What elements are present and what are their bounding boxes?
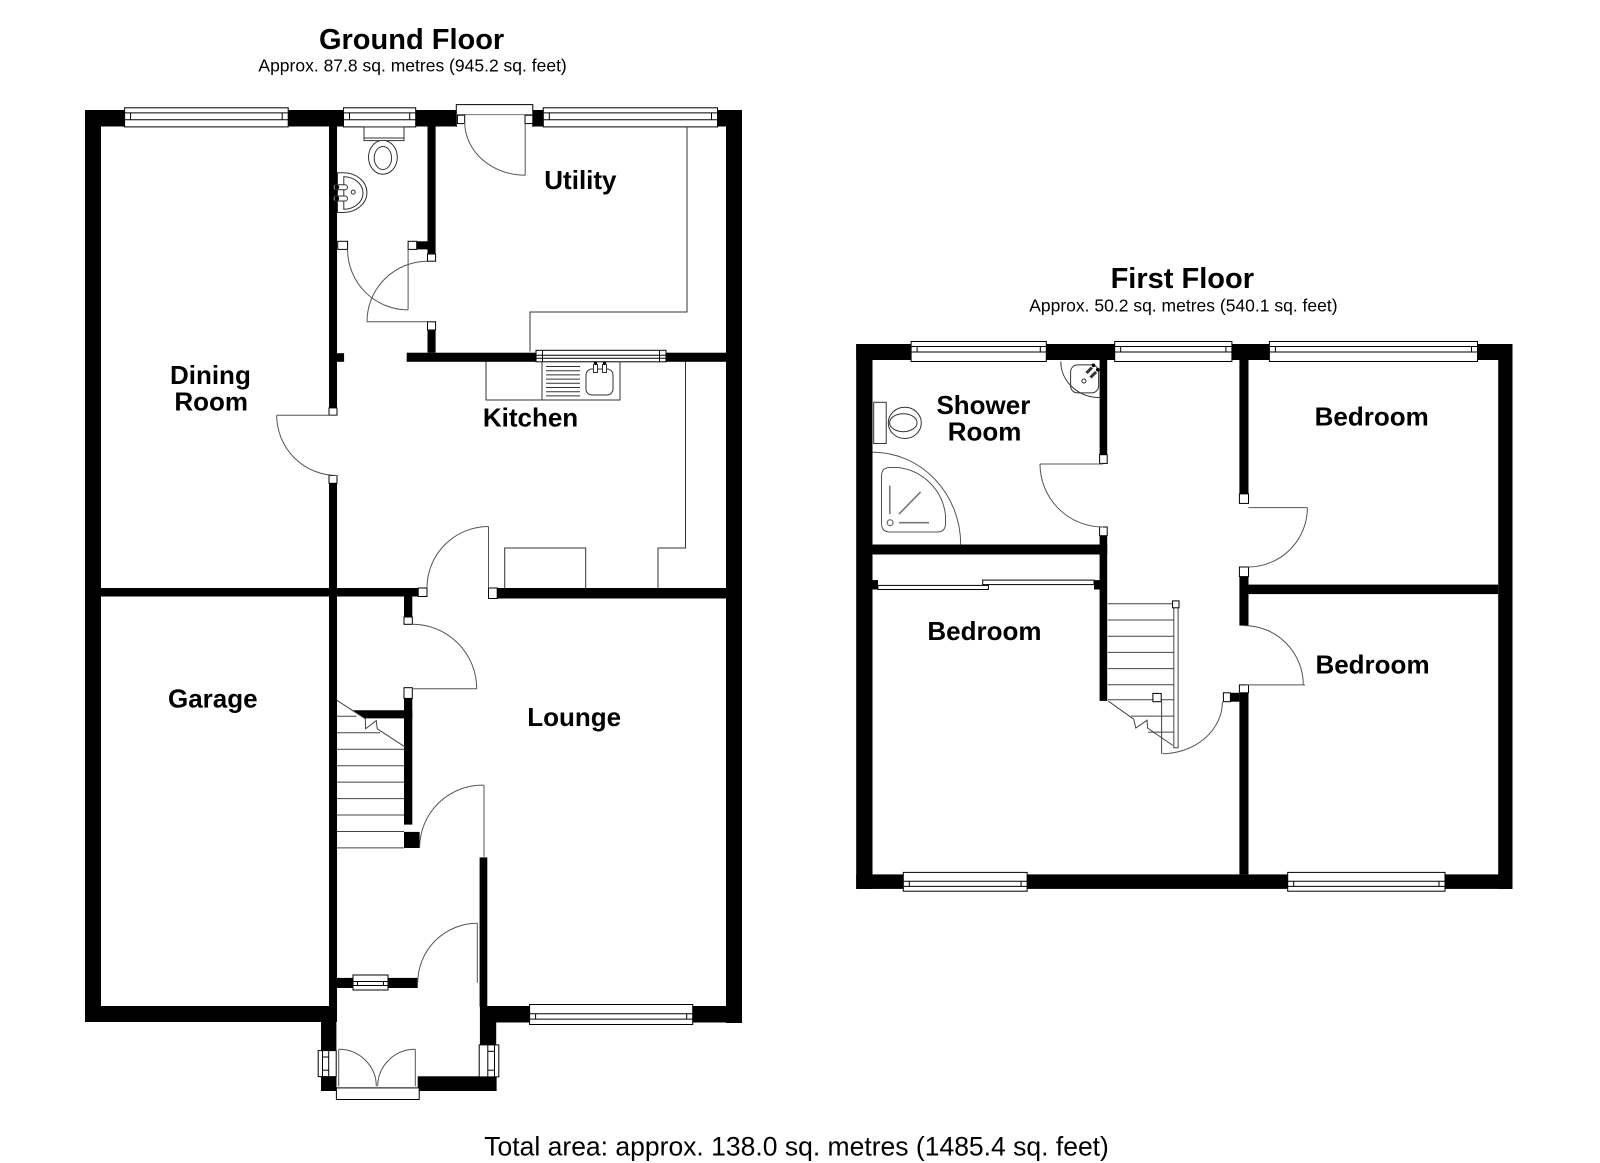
svg-text:Room: Room bbox=[174, 387, 248, 417]
svg-text:Shower: Shower bbox=[936, 390, 1030, 420]
svg-text:Bedroom: Bedroom bbox=[927, 616, 1041, 646]
svg-text:Utility: Utility bbox=[544, 165, 617, 195]
svg-text:Dining: Dining bbox=[170, 360, 251, 390]
svg-text:Lounge: Lounge bbox=[527, 702, 621, 732]
svg-text:Room: Room bbox=[948, 417, 1022, 447]
svg-text:Garage: Garage bbox=[168, 684, 258, 714]
svg-text:Approx. 50.2 sq. metres (540.1: Approx. 50.2 sq. metres (540.1 sq. feet) bbox=[1029, 296, 1337, 316]
svg-text:Approx. 87.8 sq. metres (945.2: Approx. 87.8 sq. metres (945.2 sq. feet) bbox=[258, 55, 566, 75]
svg-text:Total area: approx. 138.0 sq.: Total area: approx. 138.0 sq. metres (14… bbox=[484, 1132, 1109, 1162]
svg-text:First Floor: First Floor bbox=[1111, 263, 1254, 295]
svg-text:Kitchen: Kitchen bbox=[483, 403, 578, 433]
svg-text:Bedroom: Bedroom bbox=[1315, 401, 1429, 431]
svg-text:Bedroom: Bedroom bbox=[1315, 650, 1429, 680]
svg-text:Ground Floor: Ground Floor bbox=[319, 24, 504, 56]
